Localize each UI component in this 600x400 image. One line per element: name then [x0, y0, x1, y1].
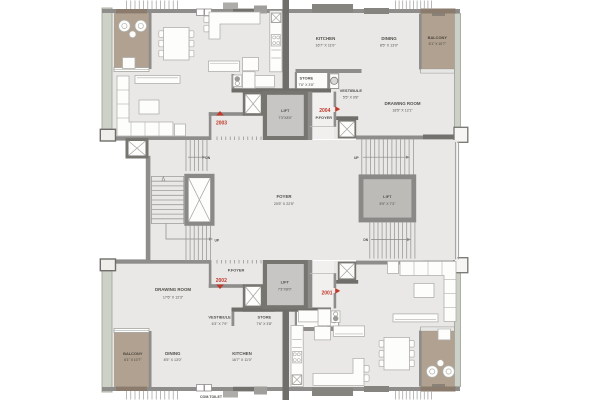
svg-text:COM.TOILET: COM.TOILET: [200, 395, 223, 399]
svg-text:STORE: STORE: [257, 314, 271, 319]
svg-text:DRAWING ROOM: DRAWING ROOM: [155, 287, 191, 292]
svg-text:8'5" X 13'0": 8'5" X 13'0": [164, 358, 183, 362]
svg-text:BALCONY: BALCONY: [123, 351, 143, 356]
svg-text:6'3" X 7'9": 6'3" X 7'9": [212, 322, 229, 326]
svg-text:P.FOYER: P.FOYER: [228, 268, 245, 273]
svg-text:STORE: STORE: [299, 76, 313, 81]
svg-text:2003: 2003: [216, 120, 227, 126]
svg-text:FOYER: FOYER: [276, 194, 292, 199]
svg-text:P.FOYER: P.FOYER: [316, 115, 333, 120]
svg-text:2002: 2002: [216, 278, 227, 284]
svg-text:2004: 2004: [319, 108, 330, 114]
svg-text:DN: DN: [363, 238, 368, 242]
svg-text:DINING: DINING: [381, 36, 397, 41]
svg-text:BALCONY: BALCONY: [428, 35, 448, 40]
svg-text:VESTIBULE: VESTIBULE: [208, 314, 231, 319]
svg-text:DINING: DINING: [165, 351, 181, 356]
svg-text:7'3"X8'0": 7'3"X8'0": [278, 116, 293, 120]
svg-text:16'7" X 11'0": 16'7" X 11'0": [232, 358, 253, 362]
svg-text:KITCHEN: KITCHEN: [232, 351, 252, 356]
svg-text:2001: 2001: [321, 290, 332, 296]
svg-text:7'6" X 3'8": 7'6" X 3'8": [256, 322, 273, 326]
svg-text:18'5" X 12'1": 18'5" X 12'1": [392, 109, 413, 113]
svg-text:8'5" X 13'0": 8'5" X 13'0": [380, 43, 399, 47]
svg-text:6'1" X 10'7": 6'1" X 10'7": [124, 358, 142, 362]
svg-text:7'6" X 3'8": 7'6" X 3'8": [298, 83, 315, 87]
svg-text:LIFT: LIFT: [281, 108, 290, 113]
svg-text:20'5" X 22'5": 20'5" X 22'5": [274, 202, 295, 206]
svg-text:17'6" X 12'3": 17'6" X 12'3": [163, 295, 184, 299]
svg-text:VESTIBULE: VESTIBULE: [340, 88, 363, 93]
svg-text:7'3"X8'0": 7'3"X8'0": [278, 287, 293, 291]
svg-text:UP: UP: [214, 238, 219, 242]
svg-text:LIFT: LIFT: [281, 280, 290, 285]
svg-text:6'1" X 10'7": 6'1" X 10'7": [429, 42, 447, 46]
svg-text:16'7" X 11'0": 16'7" X 11'0": [315, 43, 336, 47]
svg-text:UP: UP: [354, 156, 359, 160]
svg-text:DRAWING ROOM: DRAWING ROOM: [384, 101, 420, 106]
svg-text:KITCHEN: KITCHEN: [316, 36, 336, 41]
svg-text:8'9" X 7'3": 8'9" X 7'3": [379, 202, 396, 206]
svg-text:LIFT: LIFT: [383, 194, 392, 199]
svg-text:DN: DN: [205, 156, 210, 160]
svg-text:5'5" X 9'8": 5'5" X 9'8": [343, 95, 360, 99]
